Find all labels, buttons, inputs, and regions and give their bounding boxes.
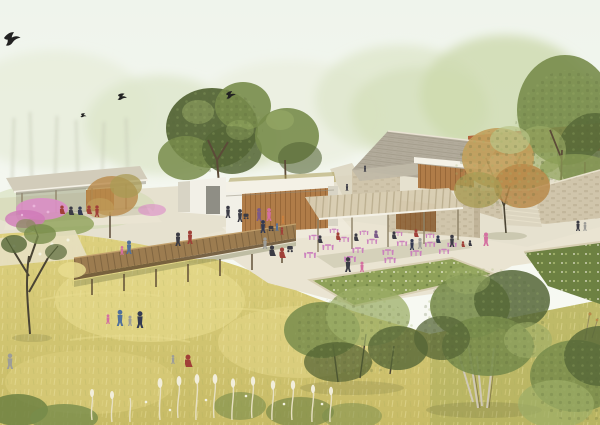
rendering-canvas [0, 0, 600, 425]
rendering-svg [0, 0, 600, 425]
dark-opening [206, 186, 220, 214]
